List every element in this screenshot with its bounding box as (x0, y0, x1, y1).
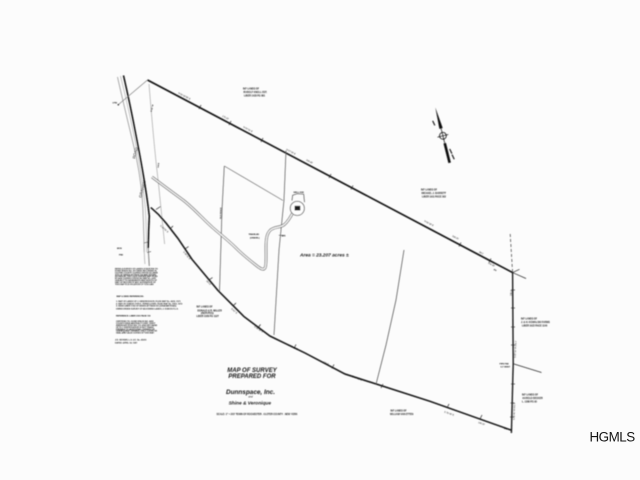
svg-text:3. DEED LIBER 1742 OF DEEDS A: 3. DEED LIBER 1742 OF DEEDS AT PAGE 611 … (116, 305, 177, 308)
svg-text:J.R. SNYDER, L.S. LIC. No. 49: J.R. SNYDER, L.S. LIC. No. 49211 (115, 339, 147, 342)
svg-text:LIBER 1423 PG 881: LIBER 1423 PG 881 (244, 94, 266, 97)
svg-text:RUDOLF KNOLL EST.: RUDOLF KNOLL EST. (244, 92, 268, 94)
svg-text:(GRAVEL): (GRAVEL) (250, 237, 260, 240)
svg-text:HAROLD DECKER: HAROLD DECKER (523, 397, 544, 400)
svg-text:0.3' WEST: 0.3' WEST (501, 367, 511, 369)
svg-text:MON: MON (117, 248, 122, 250)
svg-text:TRAVELED: TRAVELED (249, 233, 260, 236)
svg-text:I.PIN: I.PIN (113, 102, 118, 104)
svg-text:and: and (248, 394, 253, 398)
svg-text:LIBER 1622 PAGE 1140: LIBER 1622 PAGE 1140 (522, 325, 548, 328)
svg-text:REFERENCE: LIBER 2301 PAGE 1: REFERENCE: LIBER 2301 PAGE 118 (116, 315, 151, 318)
svg-text:N/F LANDS OF: N/F LANDS OF (197, 306, 214, 309)
svg-text:PREPARED FOR: PREPARED FOR (228, 374, 276, 380)
svg-text:WELL HSE: WELL HSE (294, 192, 305, 194)
svg-text:N/F LANDS OF: N/F LANDS OF (521, 318, 538, 321)
svg-text:N/F LANDS OF: N/F LANDS OF (391, 410, 408, 413)
svg-text:OLD FENCE: OLD FENCE (220, 207, 222, 219)
svg-text:LIBER 1911 PAGE 302: LIBER 1911 PAGE 302 (422, 196, 447, 199)
svg-text:MICHAEL J. BARRETT: MICHAEL J. BARRETT (422, 192, 447, 195)
svg-text:UNRECORDED SURVEY OF ADJOINING: UNRECORDED SURVEY OF ADJOINING LANDS, J.… (116, 308, 179, 311)
svg-text:SEAL ARE VALID COPIES OF THIS: SEAL ARE VALID COPIES OF THIS MAP. (116, 332, 155, 335)
svg-text:(REPUTED): (REPUTED) (201, 313, 214, 315)
svg-text:Area = 23.207 acres ±: Area = 23.207 acres ± (299, 253, 349, 259)
svg-text:MAP & DEED REFERENCES:: MAP & DEED REFERENCES: (117, 295, 145, 298)
svg-text:N/F LANDS OF: N/F LANDS OF (421, 189, 438, 192)
svg-text:DATED: APRIL 14, 1987: DATED: APRIL 14, 1987 (115, 342, 138, 345)
svg-text:N/F LANDS OF: N/F LANDS OF (243, 87, 260, 90)
svg-text:HGMLS: HGMLS (590, 429, 636, 444)
svg-text:188.2': 188.2' (511, 289, 513, 296)
svg-text:WILLIAM VAN ETTEN: WILLIAM VAN ETTEN (390, 413, 414, 416)
svg-text:Shine & Veronique: Shine & Veronique (229, 401, 272, 407)
svg-text:J. & H. KOWALSKI FARMS: J. & H. KOWALSKI FARMS (521, 321, 550, 324)
svg-text:SCALE: 1" = 200' TOWN OF ROC: SCALE: 1" = 200' TOWN OF ROCHESTER . ULS… (217, 413, 298, 416)
svg-text:LIBER 1086 PG 1127: LIBER 1086 PG 1127 (197, 316, 220, 318)
svg-text:PIPE FND: PIPE FND (500, 363, 510, 365)
svg-text:FND: FND (119, 255, 124, 257)
svg-text:N/F LANDS OF: N/F LANDS OF (522, 393, 539, 396)
svg-text:L. 1388 PG 95: L. 1388 PG 95 (522, 401, 538, 403)
svg-text:THIS MAP IS A VIOLATION OF 720: THIS MAP IS A VIOLATION OF 7209 LAW. (115, 283, 154, 286)
